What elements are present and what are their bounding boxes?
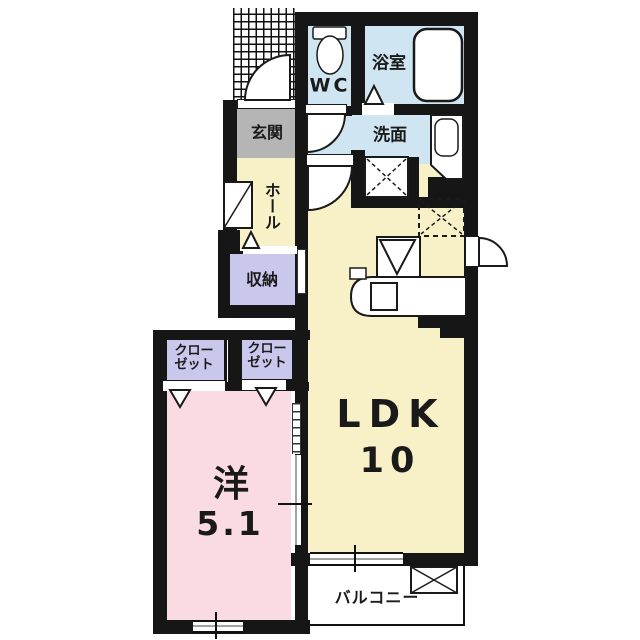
partition-tick bbox=[278, 503, 312, 505]
wall-kitchen-step2 bbox=[440, 326, 464, 338]
wall-storage-left bbox=[218, 248, 229, 308]
closet-right-label: クロー ゼット bbox=[247, 343, 286, 372]
western-room-size: 5.1 bbox=[196, 506, 263, 542]
hall-label: ホール bbox=[262, 182, 280, 230]
washroom-door-leaf bbox=[306, 154, 354, 166]
closet-right-line1: クロー bbox=[247, 342, 286, 357]
closet-right-line2: ゼット bbox=[247, 356, 286, 371]
entrance-porch-hatch bbox=[233, 8, 295, 105]
washroom-label: 洗面 bbox=[373, 127, 407, 146]
closet-left-label: クロー ゼット bbox=[174, 345, 213, 374]
western-room-label: 洋 bbox=[213, 465, 249, 505]
balcony-sliding-window bbox=[310, 552, 403, 566]
bath-door-opening bbox=[362, 103, 394, 115]
wall-washroom-bottom bbox=[351, 197, 464, 208]
wall-storage-bottom bbox=[218, 305, 308, 318]
wall-top bbox=[296, 12, 478, 26]
hall-ldk-opening bbox=[297, 249, 306, 294]
floorplan: WC 浴室 洗面 玄関 ホール 収納 クロー ゼット クロー ゼット 洋 5.1… bbox=[0, 0, 640, 640]
back-door-leaf bbox=[465, 236, 479, 267]
storage-opening bbox=[243, 246, 297, 254]
window-tick bbox=[354, 545, 356, 572]
entrance-door-leaf bbox=[237, 99, 296, 109]
closet-left-line2: ゼット bbox=[174, 358, 213, 373]
wall-wc-bath bbox=[351, 12, 365, 115]
wall-sink-chunk bbox=[428, 177, 464, 198]
window-tick bbox=[215, 612, 217, 639]
room-partition-opening bbox=[292, 455, 301, 545]
ldk-label: LDK bbox=[336, 394, 445, 436]
entrance-label: 玄関 bbox=[251, 124, 283, 142]
balcony-label: バルコニー bbox=[335, 589, 420, 607]
ldk-size: 10 bbox=[360, 442, 421, 481]
wc-door-leaf bbox=[305, 104, 347, 115]
wc-label: WC bbox=[310, 76, 351, 97]
storage-label: 収納 bbox=[246, 271, 278, 289]
sliding-partition bbox=[292, 403, 301, 454]
back-door-swing bbox=[479, 238, 507, 266]
closet-right-opening bbox=[242, 380, 286, 390]
bedroom-window bbox=[193, 620, 243, 633]
wall-right bbox=[464, 12, 478, 566]
bathroom-label: 浴室 bbox=[372, 55, 406, 74]
wall-outer-left bbox=[153, 330, 167, 634]
ldk-room bbox=[306, 164, 464, 555]
closet-left-opening bbox=[163, 381, 225, 391]
closet-left-line1: クロー bbox=[174, 344, 213, 359]
